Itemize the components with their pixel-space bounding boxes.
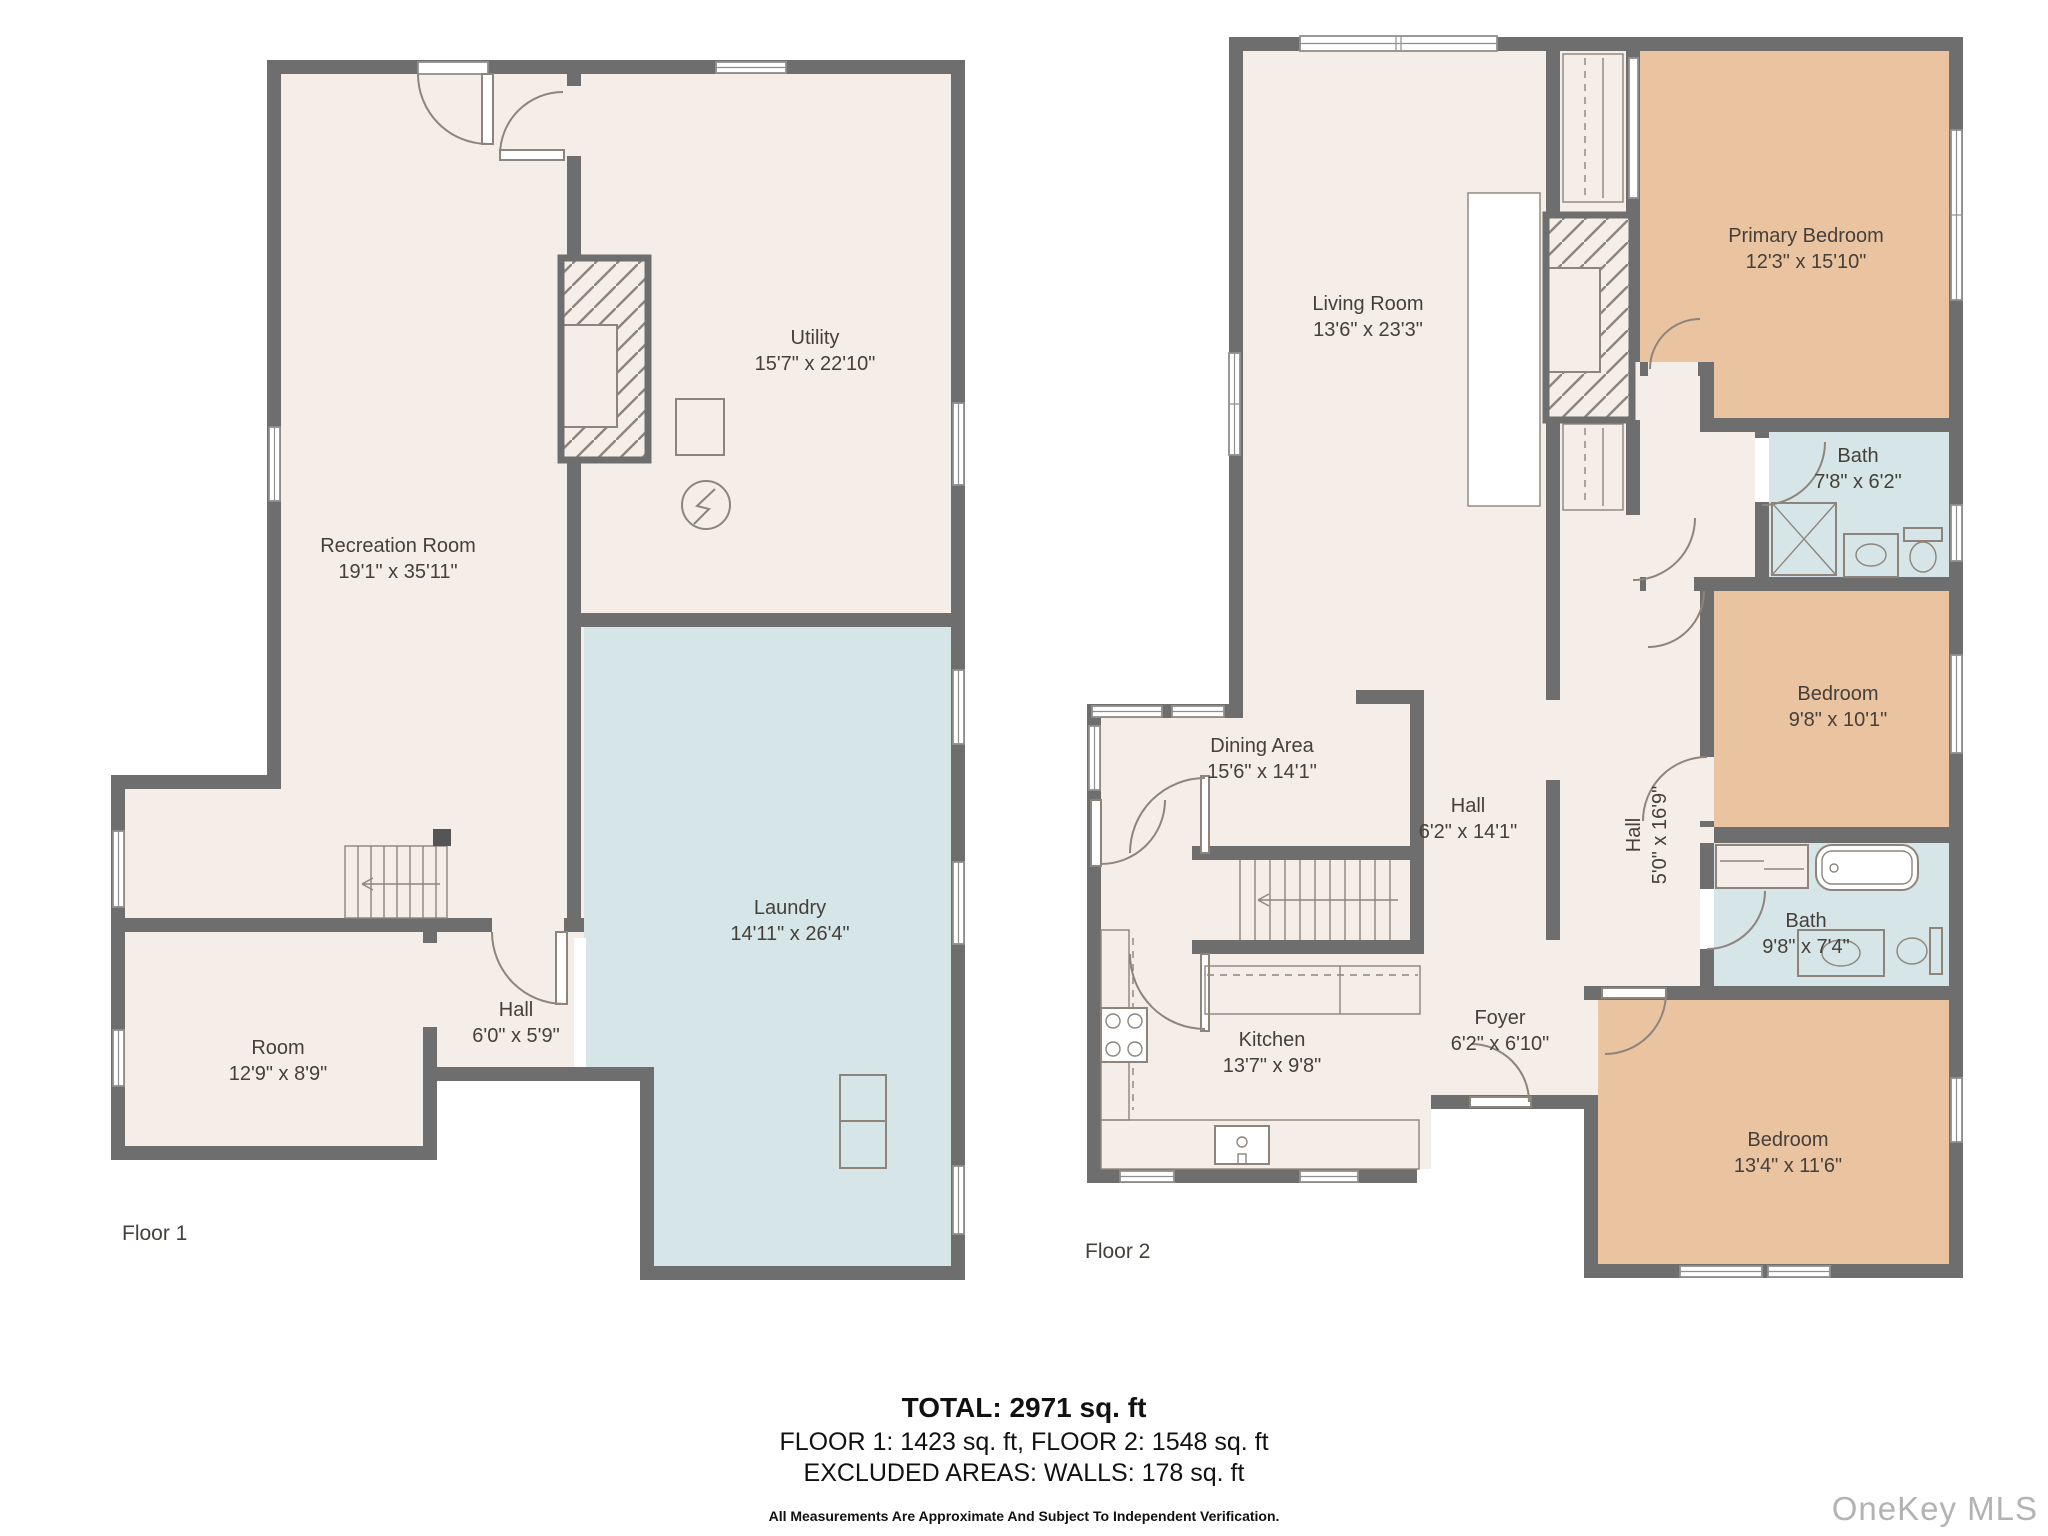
svg-text:Utility: Utility: [791, 327, 840, 349]
floor-plan-canvas: Recreation Room 19'1" x 35'11" Utility 1…: [0, 0, 2048, 1536]
svg-text:Bedroom: Bedroom: [1797, 683, 1878, 705]
svg-text:Bedroom: Bedroom: [1747, 1129, 1828, 1151]
summary-floors: FLOOR 1: 1423 sq. ft, FLOOR 2: 1548 sq. …: [0, 1428, 2048, 1457]
svg-text:6'2" x 6'10": 6'2" x 6'10": [1451, 1033, 1550, 1055]
svg-text:9'8" x 7'4": 9'8" x 7'4": [1762, 936, 1849, 958]
summary-disclaimer: All Measurements Are Approximate And Sub…: [0, 1508, 2048, 1524]
svg-text:Dining Area: Dining Area: [1210, 735, 1314, 757]
laundry-floor: [584, 627, 951, 1266]
primary-closet-slider: [1629, 58, 1638, 198]
svg-text:6'2" x 14'1": 6'2" x 14'1": [1419, 821, 1518, 843]
svg-text:13'7" x 9'8": 13'7" x 9'8": [1223, 1055, 1322, 1077]
svg-text:Hall: Hall: [1451, 795, 1485, 817]
svg-text:15'6" x 14'1": 15'6" x 14'1": [1207, 761, 1317, 783]
svg-text:12'3" x 15'10": 12'3" x 15'10": [1746, 251, 1867, 273]
chimney-floor2: [1546, 215, 1632, 420]
living-room-builtin: [1468, 193, 1540, 506]
svg-text:Recreation Room: Recreation Room: [320, 535, 476, 557]
svg-text:Hall: Hall: [1623, 818, 1645, 852]
svg-text:Room: Room: [251, 1037, 304, 1059]
svg-text:15'7" x 22'10": 15'7" x 22'10": [755, 353, 876, 375]
svg-text:19'1" x 35'11": 19'1" x 35'11": [338, 561, 457, 583]
kitchen-sink-icon: [1215, 1126, 1269, 1164]
bath2-closet: [1716, 845, 1808, 888]
svg-text:5'0" x 16'9": 5'0" x 16'9": [1649, 786, 1671, 885]
svg-text:7'8" x 6'2": 7'8" x 6'2": [1814, 471, 1901, 493]
stair-newel: [433, 829, 451, 846]
floor-1-plan: Recreation Room 19'1" x 35'11" Utility 1…: [111, 60, 965, 1280]
svg-text:Laundry: Laundry: [754, 897, 826, 919]
chimney: [561, 258, 648, 460]
svg-text:Living Room: Living Room: [1312, 293, 1423, 315]
svg-text:14'11" x 26'4": 14'11" x 26'4": [730, 923, 849, 945]
svg-text:12'9" x 8'9": 12'9" x 8'9": [229, 1063, 328, 1085]
svg-text:9'8" x 10'1": 9'8" x 10'1": [1789, 709, 1888, 731]
summary-excluded: EXCLUDED AREAS: WALLS: 178 sq. ft: [0, 1459, 2048, 1488]
svg-text:Bath: Bath: [1837, 445, 1878, 467]
svg-text:Kitchen: Kitchen: [1239, 1029, 1306, 1051]
stove-icon: [1101, 1008, 1147, 1062]
floor-2-plan: Living Room 13'6" x 23'3" Primary Bedroo…: [1085, 36, 1963, 1278]
floor2-caption: Floor 2: [1085, 1240, 1150, 1263]
bathtub-icon: [1816, 845, 1918, 890]
svg-text:Hall: Hall: [499, 999, 533, 1021]
onekey-mls-watermark: OneKey MLS: [1832, 1490, 2038, 1528]
svg-text:Primary Bedroom: Primary Bedroom: [1728, 225, 1884, 247]
svg-text:6'0" x 5'9": 6'0" x 5'9": [472, 1025, 559, 1047]
floor1-caption: Floor 1: [122, 1222, 187, 1245]
svg-text:Bath: Bath: [1785, 910, 1826, 932]
svg-text:13'4" x 11'6": 13'4" x 11'6": [1734, 1155, 1842, 1177]
svg-text:Foyer: Foyer: [1474, 1007, 1525, 1029]
svg-text:13'6" x 23'3": 13'6" x 23'3": [1313, 319, 1423, 341]
floor-plan-page: Recreation Room 19'1" x 35'11" Utility 1…: [0, 0, 2048, 1536]
summary-total: TOTAL: 2971 sq. ft: [0, 1392, 2048, 1424]
